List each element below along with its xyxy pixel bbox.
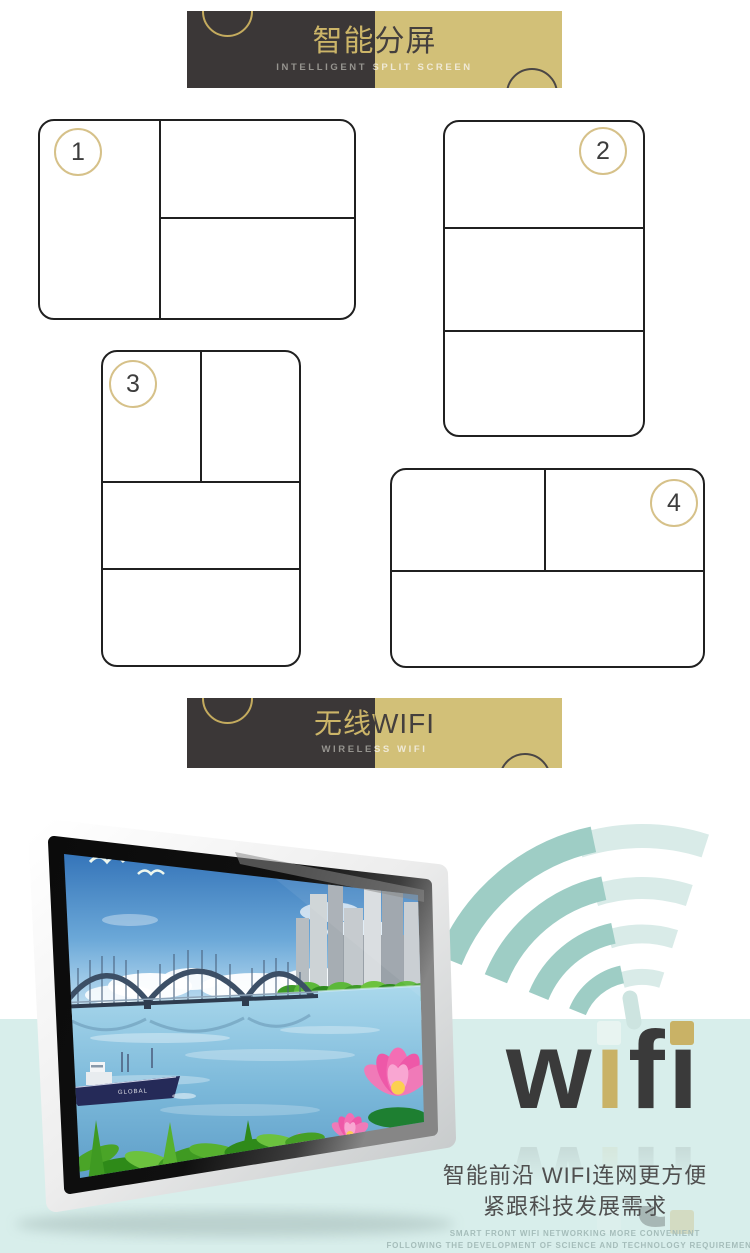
split-layout-diagram-3: 3 xyxy=(101,350,301,667)
banner-wireless-wifi: 无线WIFI 无线WIFI WIRELESS WIFI WIRELESS WIF… xyxy=(187,698,562,768)
caption-line-2: 紧跟科技发展需求 xyxy=(380,1192,750,1223)
banner-split-screen: 智能分屏 智能分屏 INTELLIGENT SPLIT SCREEN INTEL… xyxy=(187,11,562,88)
wifi-letter-dot xyxy=(670,1021,694,1045)
divider-line xyxy=(159,121,161,318)
divider-line xyxy=(392,570,703,572)
layout-number-badge: 2 xyxy=(579,127,627,175)
layout-number-badge: 1 xyxy=(54,128,102,176)
split-layout-diagram-4: 4 xyxy=(390,468,705,668)
product-detail-page: 智能分屏 智能分屏 INTELLIGENT SPLIT SCREEN INTEL… xyxy=(0,0,750,1253)
layout-number: 1 xyxy=(71,138,85,167)
divider-line xyxy=(159,217,354,219)
divider-line xyxy=(445,227,643,229)
caption-small-2: FOLLOWING THE DEVELOPMENT OF SCIENCE AND… xyxy=(380,1240,750,1252)
wifi-letter: w xyxy=(506,1016,595,1126)
split-layout-diagram-2: 2 xyxy=(443,120,645,437)
divider-line xyxy=(544,470,546,570)
layout-number: 2 xyxy=(596,137,610,166)
caption-small-1: SMART FRONT WIFI NETWORKING MORE CONVENI… xyxy=(380,1228,750,1240)
divider-line xyxy=(103,481,299,483)
divider-line xyxy=(445,330,643,332)
wifi-letter: f xyxy=(628,1016,668,1126)
layout-number-badge: 3 xyxy=(109,360,157,408)
divider-line xyxy=(103,568,299,570)
layout-number: 4 xyxy=(667,489,681,518)
split-layout-diagram-1: 1 xyxy=(38,119,356,320)
caption-line-1: 智能前沿 WIFI连网更方便 xyxy=(380,1161,750,1192)
divider-line xyxy=(200,352,202,481)
layout-number-badge: 4 xyxy=(650,479,698,527)
layout-number: 3 xyxy=(126,370,140,399)
caption-block: 智能前沿 WIFI连网更方便 紧跟科技发展需求 SMART FRONT WIFI… xyxy=(380,1161,750,1252)
wifi-letter-dot xyxy=(597,1021,621,1045)
wifi-wordmark: wıfı xyxy=(506,1016,701,1126)
